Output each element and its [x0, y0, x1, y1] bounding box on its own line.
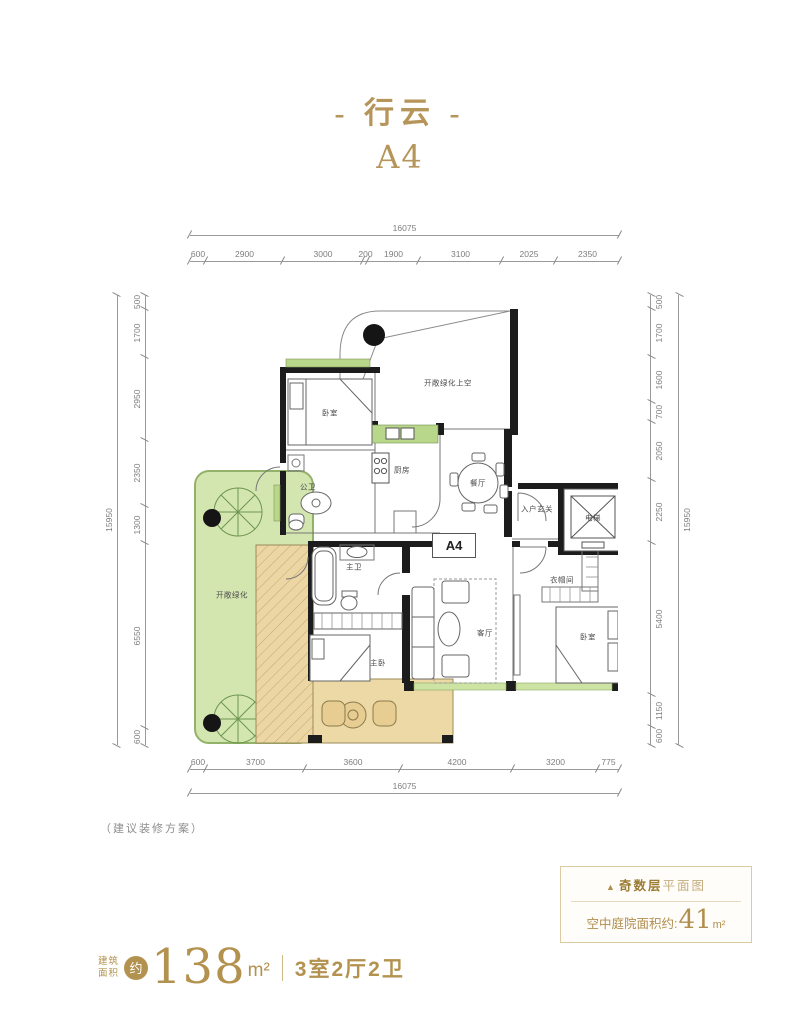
info-divider	[571, 901, 741, 902]
master-bath-fixtures	[312, 545, 374, 610]
dim-left-segments: 500 1700 2950 2350 1300 6550 600	[132, 295, 146, 745]
room-label-master-bedroom: 主卧	[370, 658, 386, 669]
triangle-icon: ▲	[606, 882, 615, 892]
layout-text: 3室2厅2卫	[295, 953, 405, 983]
room-label-elevator: 电梯	[585, 513, 601, 524]
info-box: ▲奇数层平面图 空中庭院面积约:41m²	[560, 866, 752, 943]
room-label-bedroom-right: 卧室	[580, 632, 596, 643]
page-title: - 行云 -	[0, 88, 800, 132]
courtyard-area-line: 空中庭院面积约:41m²	[571, 907, 741, 933]
courtyard-area-unit: m²	[713, 919, 726, 931]
bedroom-right-furniture	[542, 547, 618, 683]
area-summary: 建筑 面积 约 138 m² 3室2厅2卫	[98, 946, 405, 989]
dim-right-segments: 500 1700 1600 700 2050 2250 5400 1150 60…	[650, 295, 664, 745]
area-label: 建筑 面积	[98, 956, 119, 980]
living-furniture	[412, 579, 520, 683]
odd-floor-bold: 奇数层	[619, 879, 663, 893]
room-label-cloakroom: 衣帽间	[550, 575, 574, 586]
room-label-kitchen: 厨房	[394, 465, 410, 476]
room-label-entry: 入户玄关	[521, 504, 553, 515]
dim-bottom-segments: 600 3700 3600 4200 3200 775	[190, 756, 619, 770]
dim-left-total: 15950	[104, 295, 118, 745]
room-label-guest-bath: 公卫	[300, 482, 316, 493]
courtyard-area-label: 空中庭院面积约:	[587, 913, 678, 932]
unit-number: A4	[0, 138, 800, 176]
approx-badge: 约	[124, 956, 148, 980]
area-unit: m²	[248, 960, 270, 982]
courtyard-area-value: 41	[679, 907, 712, 933]
floor-plan-drawing	[190, 295, 618, 745]
room-label-dining: 餐厅	[470, 478, 486, 489]
dim-right-total: 15950	[678, 295, 692, 745]
area-separator	[282, 955, 283, 981]
area-value: 138	[151, 946, 246, 989]
decoration-note: （建议装修方案）	[100, 820, 204, 836]
room-label-master-bath: 主卫	[346, 562, 362, 573]
room-label-living: 客厅	[477, 628, 493, 639]
unit-tag-box: A4	[432, 533, 476, 558]
dim-top-segments: 600 2900 3000 200 1900 3100 2025 2350	[190, 248, 619, 262]
room-label-bedroom-top: 卧室	[322, 408, 338, 419]
kitchen-fixtures	[372, 428, 416, 533]
odd-floor-rest: 平面图	[662, 879, 706, 893]
room-label-void: 开敞绿化上空	[424, 378, 472, 389]
dim-top-total: 16075	[190, 222, 619, 236]
master-bedroom-furniture	[310, 613, 402, 681]
room-label-courtyard: 开敞绿化	[216, 590, 248, 601]
floor-plan: 卧室 公卫 厨房 餐厅 开敞绿化上空 入户玄关 电梯 衣帽间 主卫 主卧 客厅 …	[190, 295, 618, 745]
dim-bottom-total: 16075	[190, 780, 619, 794]
odd-floor-line: ▲奇数层平面图	[571, 875, 741, 894]
